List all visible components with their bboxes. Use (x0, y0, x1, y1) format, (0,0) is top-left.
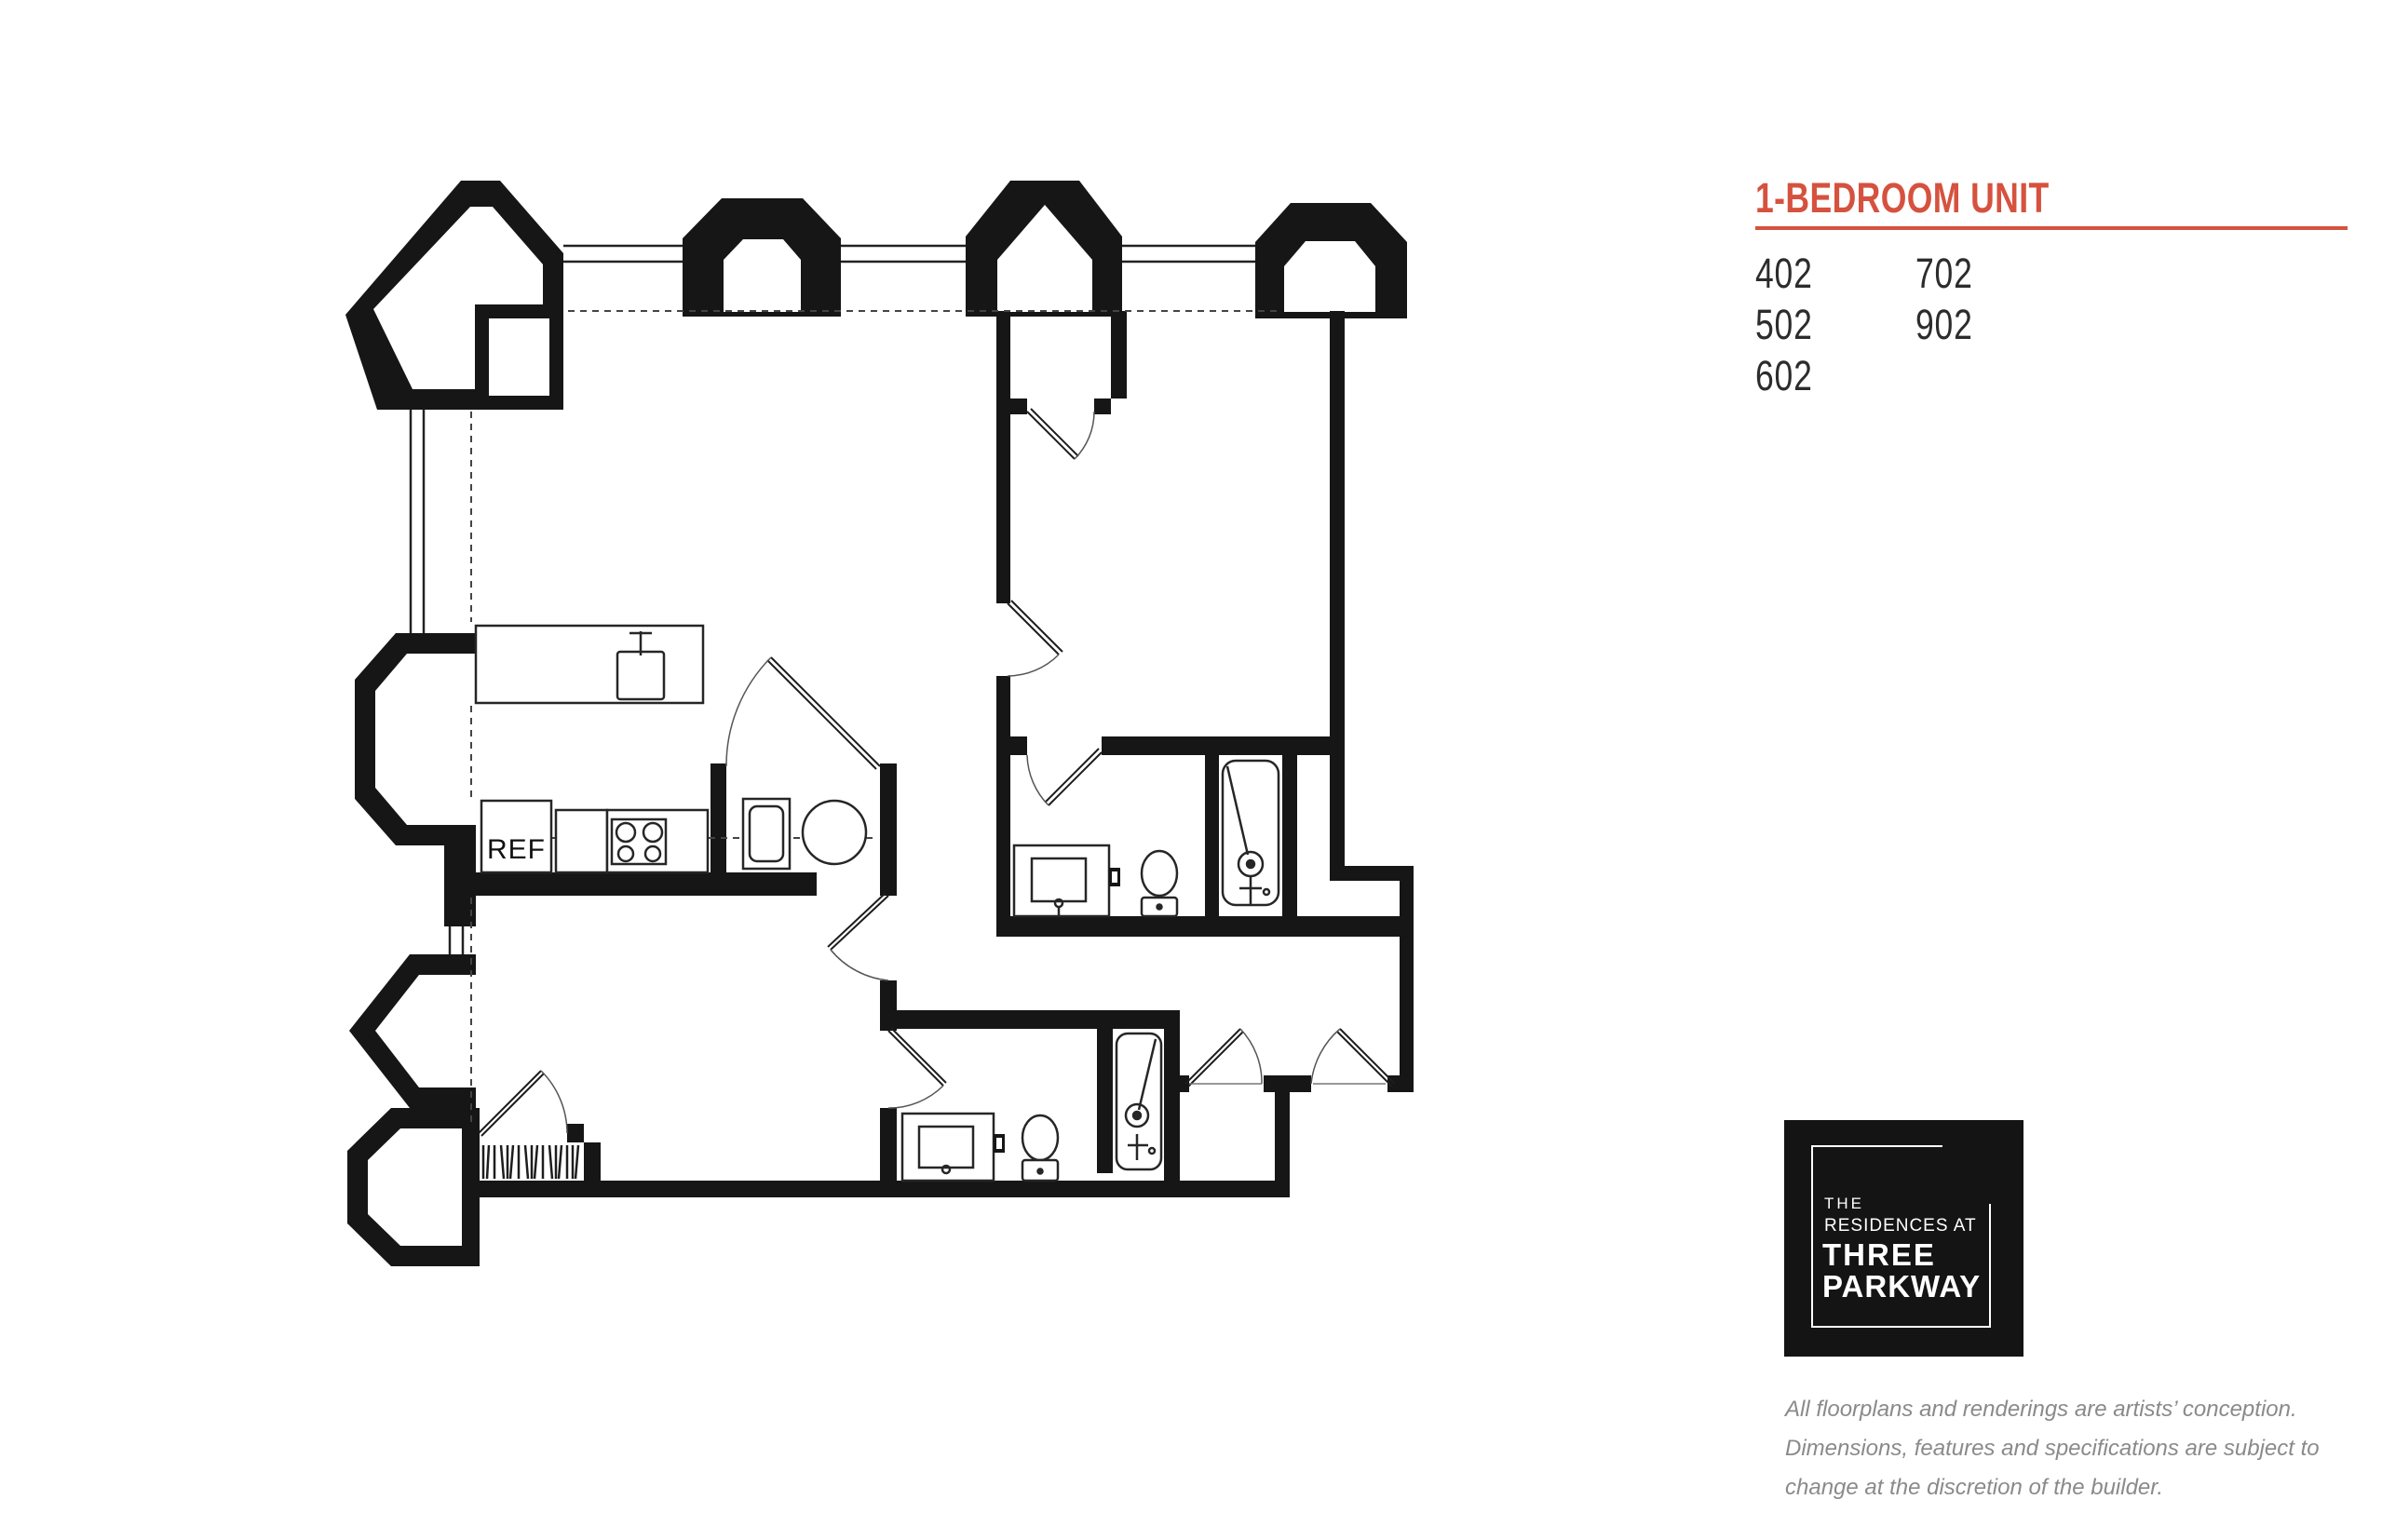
floorplan-drawing: REF (340, 168, 1429, 1266)
floorplan-sheet: { "header": { "title": "1-BEDROOM UNIT",… (0, 0, 2382, 1540)
dashed-lines (471, 311, 1280, 1122)
floorplan: REF (340, 168, 1429, 1266)
unit-number: 502 (1755, 299, 1813, 350)
bedroom-closet-door (1027, 409, 1078, 459)
bathroom2-door (888, 1028, 946, 1086)
washer (803, 801, 866, 864)
bathroom2-top-wall (897, 1010, 1180, 1029)
disclaimer-line: Dimensions, features and specifications … (1785, 1429, 2320, 1468)
logo-frame (1811, 1326, 1991, 1328)
disclaimer-line: All floorplans and renderings are artist… (1785, 1390, 2320, 1429)
ref-label: REF (487, 834, 546, 865)
logo-frame (1989, 1204, 1991, 1328)
counter-section (556, 810, 607, 872)
pantry-wall (711, 763, 726, 872)
unit-number-list-col2: 702 902 (1915, 248, 1988, 350)
unit-number: 702 (1915, 248, 1973, 299)
bedroom-closet-wall (1111, 311, 1127, 399)
hall-door (828, 893, 888, 950)
kitchen-island (476, 626, 703, 703)
toilet (1022, 1115, 1058, 1160)
info-panel: 1-BEDROOM UNIT 402 502 602 702 902 THE R… (1755, 0, 2361, 1540)
vanity (902, 1114, 994, 1181)
closet-door (479, 1071, 544, 1136)
pantry-door (767, 657, 880, 769)
unit-number: 902 (1915, 299, 1973, 350)
logo-frame (1811, 1145, 1813, 1328)
bathroom-2 (902, 1033, 1161, 1181)
kitchen-wall (468, 872, 817, 896)
disclaimer-line: change at the discretion of the builder. (1785, 1468, 2320, 1507)
bedroom-door (1008, 601, 1062, 655)
logo-text-the: THE (1824, 1195, 1864, 1213)
entry-door-right (1337, 1029, 1395, 1087)
outer-right-wall (1400, 866, 1414, 1075)
logo-text-three: THREE (1822, 1237, 1936, 1273)
entry-door-left (1185, 1029, 1243, 1087)
logo-frame (1811, 1145, 1942, 1147)
bay-windows (345, 181, 1407, 1266)
unit-number: 602 (1755, 350, 1813, 401)
bathroom1-door (1046, 749, 1102, 805)
entry-wall-stub (1264, 1075, 1311, 1092)
disclaimer: All floorplans and renderings are artist… (1785, 1390, 2320, 1507)
title-underline (1755, 226, 2348, 230)
logo-text-parkway: PARKWAY (1822, 1269, 1981, 1304)
bedroom-right-wall (1330, 311, 1345, 866)
toilet (1142, 851, 1177, 896)
island-sink (617, 652, 664, 699)
logo-text-residences-at: RESIDENCES AT (1824, 1216, 1977, 1236)
page-title: 1-BEDROOM UNIT (1755, 177, 2050, 219)
unit-number-list-col1: 402 502 602 (1755, 248, 1828, 401)
unit-number: 402 (1755, 248, 1813, 299)
brand-logo: THE RESIDENCES AT THREE PARKWAY (1784, 1120, 2023, 1357)
bathroom1-bottom-wall (996, 916, 1414, 937)
bathroom-1 (1014, 761, 1279, 916)
closet-hatching (483, 1145, 578, 1179)
bottom-wall (462, 1181, 1290, 1197)
